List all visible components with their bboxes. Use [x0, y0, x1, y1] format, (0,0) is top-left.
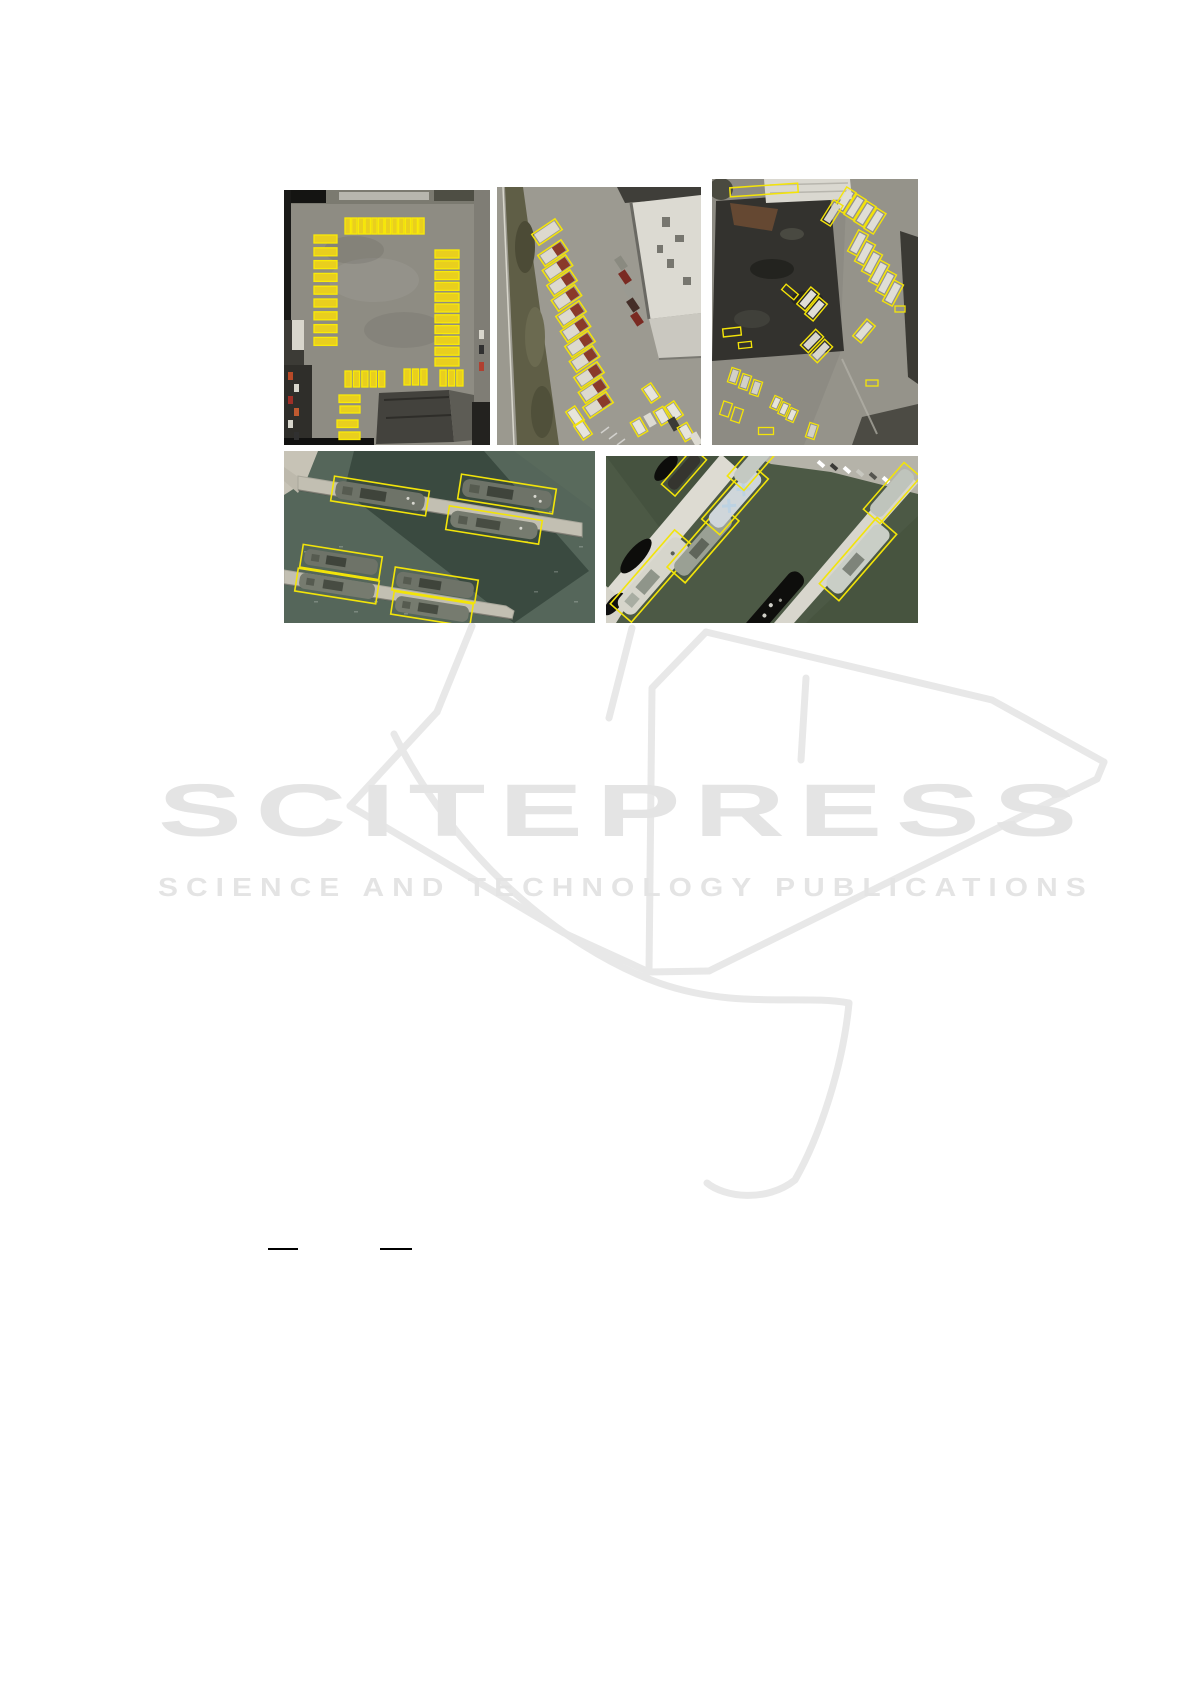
fraction-bar-2 — [380, 1248, 412, 1250]
figure-panel-rooftop-trucks — [712, 179, 918, 445]
fraction-bar-1 — [268, 1248, 298, 1250]
scitepress-watermark-title: SCITEPRESS — [158, 774, 1091, 848]
scitepress-watermark-subtitle: SCIENCE AND TECHNOLOGY PUBLICATIONS — [158, 874, 1094, 900]
figure-panel-harbor-piers-ships — [284, 451, 595, 623]
figure-panel-parking-lot-buses — [497, 187, 701, 445]
paper-page: SCITEPRESS SCIENCE AND TECHNOLOGY PUBLIC… — [0, 0, 1191, 1684]
figure-panel-harbor-dock-ships — [606, 456, 918, 623]
figure-panel-bus-depot — [284, 190, 490, 445]
